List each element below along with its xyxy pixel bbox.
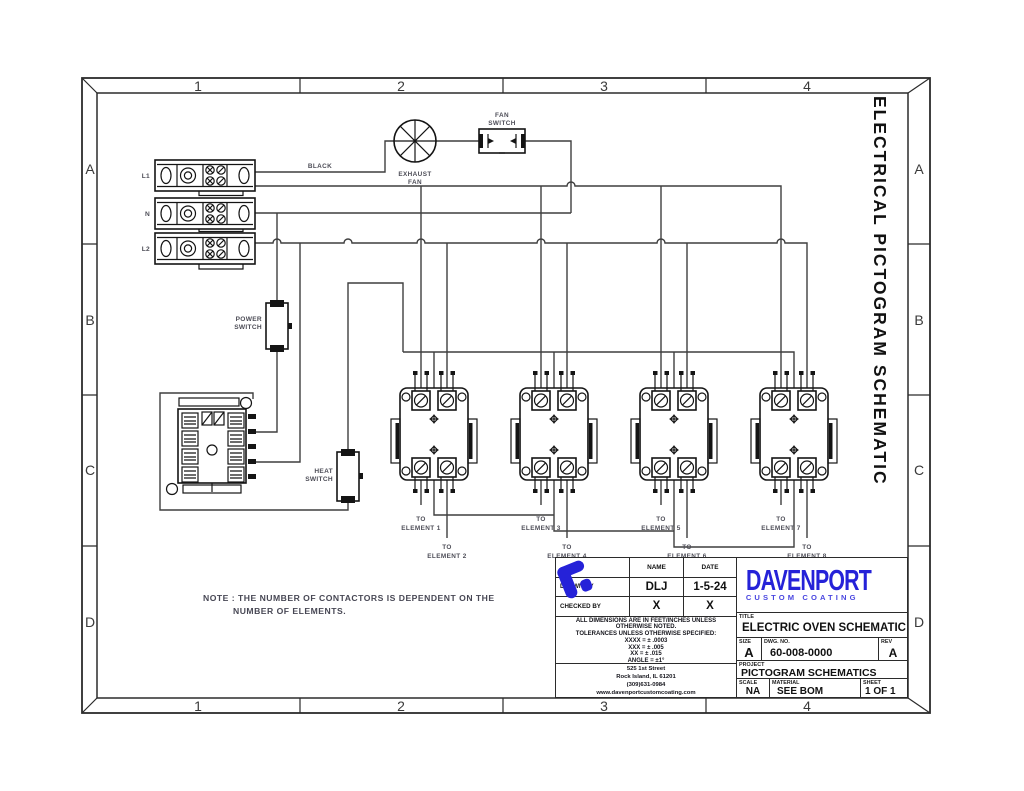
note-line-2: NUMBER OF ELEMENTS. bbox=[203, 605, 495, 618]
svg-text:SWITCH: SWITCH bbox=[488, 120, 516, 127]
dwg-no-field: DWG. NO. 60-008-0000 bbox=[762, 638, 879, 660]
zone-row-a-left: A bbox=[85, 161, 94, 177]
exhaust-fan-symbol: EXHAUST FAN bbox=[394, 120, 436, 186]
company-logo: DAVENPORT CUSTOM COATING bbox=[737, 558, 907, 612]
element-1-label: ELEMENT 1 bbox=[401, 525, 441, 532]
zone-col-3-bottom: 3 bbox=[600, 698, 608, 714]
svg-text:POWER: POWER bbox=[236, 316, 262, 323]
sheet-side-title: ELECTRICAL PICTOGRAM SCHEMATIC bbox=[869, 96, 890, 486]
svg-text:TO: TO bbox=[776, 516, 786, 523]
zone-col-4-bottom: 4 bbox=[803, 698, 811, 714]
contactors bbox=[391, 371, 837, 493]
distribution-block-symbol bbox=[167, 398, 257, 495]
tolerance-notes: ALL DIMENSIONS ARE IN FEET/INCHES UNLESS… bbox=[556, 617, 736, 664]
heat-switch-symbol: HEAT SWITCH bbox=[305, 449, 363, 503]
project-field: PROJECT PICTOGRAM SCHEMATICS bbox=[737, 660, 907, 678]
svg-text:FAN: FAN bbox=[408, 179, 422, 186]
material-field: MATERIAL SEE BOM bbox=[770, 679, 861, 697]
svg-text:SWITCH: SWITCH bbox=[305, 476, 333, 483]
svg-text:TO: TO bbox=[682, 544, 692, 551]
fan-switch-symbol: FAN SWITCH bbox=[479, 112, 525, 153]
zone-col-2-top: 2 bbox=[397, 78, 405, 94]
logo-name: DAVENPORT bbox=[746, 567, 871, 594]
drawn-by-date: 1-5-24 bbox=[684, 578, 736, 598]
svg-text:TO: TO bbox=[562, 544, 572, 551]
svg-text:TO: TO bbox=[442, 544, 452, 551]
power-switch-symbol: POWER SWITCH bbox=[234, 300, 292, 352]
drawn-by-name: DLJ bbox=[630, 578, 684, 598]
zone-row-d-right: D bbox=[914, 614, 924, 630]
zone-row-c-right: C bbox=[914, 462, 924, 478]
terminal-label-n: N bbox=[145, 211, 150, 218]
contactor-3 bbox=[631, 371, 717, 493]
drawing-sheet: L1 N L2 EXHAUST FAN FAN SWITCH POWER SWI… bbox=[0, 0, 1024, 791]
company-address: 525 1st Street Rock Island, IL 61201 (30… bbox=[556, 664, 736, 698]
svg-text:TO: TO bbox=[536, 516, 546, 523]
title-field: TITLE ELECTRIC OVEN SCHEMATIC bbox=[737, 612, 907, 636]
logo-icon bbox=[556, 558, 594, 602]
contactor-1 bbox=[391, 371, 477, 493]
terminal-blocks: L1 N L2 bbox=[142, 160, 255, 269]
element-7-label: ELEMENT 7 bbox=[761, 525, 801, 532]
zone-col-3-top: 3 bbox=[600, 78, 608, 94]
sheet-field: SHEET 1 OF 1 bbox=[861, 679, 907, 697]
terminal-label-l1: L1 bbox=[142, 173, 150, 180]
zone-row-a-right: A bbox=[914, 161, 923, 177]
element-2-label: ELEMENT 2 bbox=[427, 553, 467, 560]
zone-row-b-right: B bbox=[914, 312, 923, 328]
svg-text:TO: TO bbox=[802, 544, 812, 551]
svg-text:EXHAUST: EXHAUST bbox=[398, 171, 431, 178]
zone-col-4-top: 4 bbox=[803, 78, 811, 94]
wire-label-black: BLACK bbox=[308, 163, 332, 170]
name-header: NAME bbox=[630, 558, 684, 578]
terminal-label-l2: L2 bbox=[142, 246, 150, 253]
wiring bbox=[160, 141, 807, 547]
checked-by-name: X bbox=[630, 597, 684, 617]
contactor-4 bbox=[751, 371, 837, 493]
element-5-label: ELEMENT 5 bbox=[641, 525, 681, 532]
svg-text:TO: TO bbox=[656, 516, 666, 523]
note-line-1: NOTE : THE NUMBER OF CONTACTORS IS DEPEN… bbox=[203, 592, 495, 605]
note-text: NOTE : THE NUMBER OF CONTACTORS IS DEPEN… bbox=[203, 592, 495, 619]
scale-field: SCALE NA bbox=[737, 679, 770, 697]
svg-text:TO: TO bbox=[416, 516, 426, 523]
svg-text:HEAT: HEAT bbox=[314, 468, 333, 475]
size-field: SIZE A bbox=[737, 638, 762, 660]
zone-row-b-left: B bbox=[85, 312, 94, 328]
contactor-2 bbox=[511, 371, 597, 493]
zone-col-1-top: 1 bbox=[194, 78, 202, 94]
element-3-label: ELEMENT 3 bbox=[521, 525, 561, 532]
drawing-title: ELECTRIC OVEN SCHEMATIC bbox=[737, 613, 907, 634]
date-header: DATE bbox=[684, 558, 736, 578]
zone-col-2-bottom: 2 bbox=[397, 698, 405, 714]
zone-row-c-left: C bbox=[85, 462, 95, 478]
svg-text:FAN: FAN bbox=[495, 112, 509, 119]
checked-by-date: X bbox=[684, 597, 736, 617]
title-block: NAME DATE DRAWN BY DLJ 1-5-24 CHECKED BY… bbox=[555, 557, 908, 698]
zone-col-1-bottom: 1 bbox=[194, 698, 202, 714]
zone-row-d-left: D bbox=[85, 614, 95, 630]
svg-text:SWITCH: SWITCH bbox=[234, 324, 262, 331]
rev-field: REV A bbox=[879, 638, 907, 660]
